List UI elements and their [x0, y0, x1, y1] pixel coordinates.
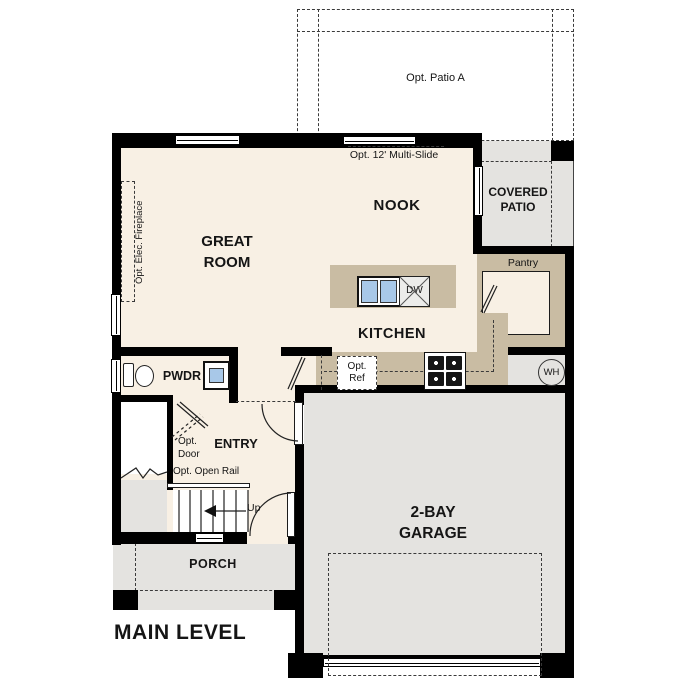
burner-icon	[428, 372, 444, 386]
wall-pwdr-top	[112, 347, 238, 356]
wall-patio-pantry	[473, 246, 574, 254]
plan-title: MAIN LEVEL	[114, 620, 354, 646]
pwdr-sink-basin	[209, 368, 224, 383]
water-heater: WH	[538, 359, 565, 386]
nook-label: NOOK	[347, 197, 447, 216]
wall-exterior-left	[112, 133, 121, 545]
opt-fireplace-box	[121, 181, 135, 302]
wall-closet-top	[281, 347, 332, 356]
range-cooktop	[424, 352, 466, 390]
up-label: Up	[247, 502, 269, 515]
opt-patio-roofline	[297, 31, 574, 32]
porch-area	[113, 543, 297, 610]
great-room-label: GREAT ROOM	[192, 231, 262, 273]
stair-window	[195, 533, 224, 543]
burner-icon	[428, 356, 444, 370]
burner-icon	[446, 356, 462, 370]
pantry-label: Pantry	[481, 257, 565, 270]
opt-fireplace-label: Opt. Elec. Fireplace	[134, 180, 148, 304]
closet-strip-dash	[321, 355, 322, 390]
sink-basin-left	[361, 280, 378, 303]
wall-wh-top	[508, 347, 568, 355]
porch-label: PORCH	[163, 557, 263, 573]
stair-rail	[167, 483, 250, 488]
opt-patio-label: Opt. Patio A	[297, 72, 574, 86]
understair-closet	[121, 402, 167, 474]
opt-ref-box: Opt. Ref	[337, 356, 377, 390]
great-room-window-left	[111, 294, 121, 336]
kitchen-label: KITCHEN	[342, 325, 442, 343]
opt-ref-label: Opt. Ref	[344, 361, 370, 386]
open-rail-label: Opt. Open Rail	[173, 466, 265, 479]
wall-garage-right	[565, 392, 574, 659]
stair-treads-area	[173, 490, 248, 532]
dishwasher: DW	[399, 276, 430, 307]
sink-basin-right	[380, 280, 397, 303]
island-sink	[357, 276, 401, 307]
entry-header-line	[236, 401, 296, 402]
porch-post-left	[113, 590, 138, 610]
multi-slide-label: Opt. 12' Multi-Slide	[330, 149, 458, 162]
water-heater-label: WH	[544, 367, 560, 379]
burner-icon	[446, 372, 462, 386]
garage-entry-door-leaf	[294, 402, 303, 445]
covered-patio-roofline	[481, 161, 552, 162]
dishwasher-x-icon	[400, 277, 429, 306]
garage-post-right	[540, 653, 574, 678]
porch-roofline-h	[135, 590, 297, 591]
upper-cabinet-dash-v	[493, 320, 494, 372]
pwdr-window-left	[111, 359, 121, 393]
garage-door-swing	[328, 553, 542, 676]
understair-storage	[121, 480, 167, 532]
porch-roofline-v	[135, 543, 136, 591]
pwdr-label: PWDR	[157, 369, 207, 385]
multi-slide-door	[343, 136, 416, 145]
covered-patio-post	[551, 141, 574, 161]
opt-door-label: Opt. Door	[178, 436, 208, 461]
great-room-window-top	[175, 135, 240, 145]
wall-pwdr-right	[229, 347, 238, 403]
toilet-tank	[123, 363, 134, 387]
porch-post-right	[274, 590, 297, 610]
floor-plan: Opt. Ref DW WH	[0, 0, 687, 687]
wall-right-thick	[565, 252, 574, 392]
front-door-opening	[247, 532, 288, 544]
toilet-bowl	[135, 365, 154, 387]
entry-label: ENTRY	[209, 436, 263, 452]
pwdr-sink	[203, 361, 230, 390]
front-door-leaf	[287, 492, 295, 537]
garage-post-left	[288, 653, 323, 678]
covered-patio-label: COVERED PATIO	[478, 185, 558, 215]
garage-label: 2-BAY GARAGE	[388, 503, 478, 545]
multi-slide-dashline	[348, 146, 444, 147]
